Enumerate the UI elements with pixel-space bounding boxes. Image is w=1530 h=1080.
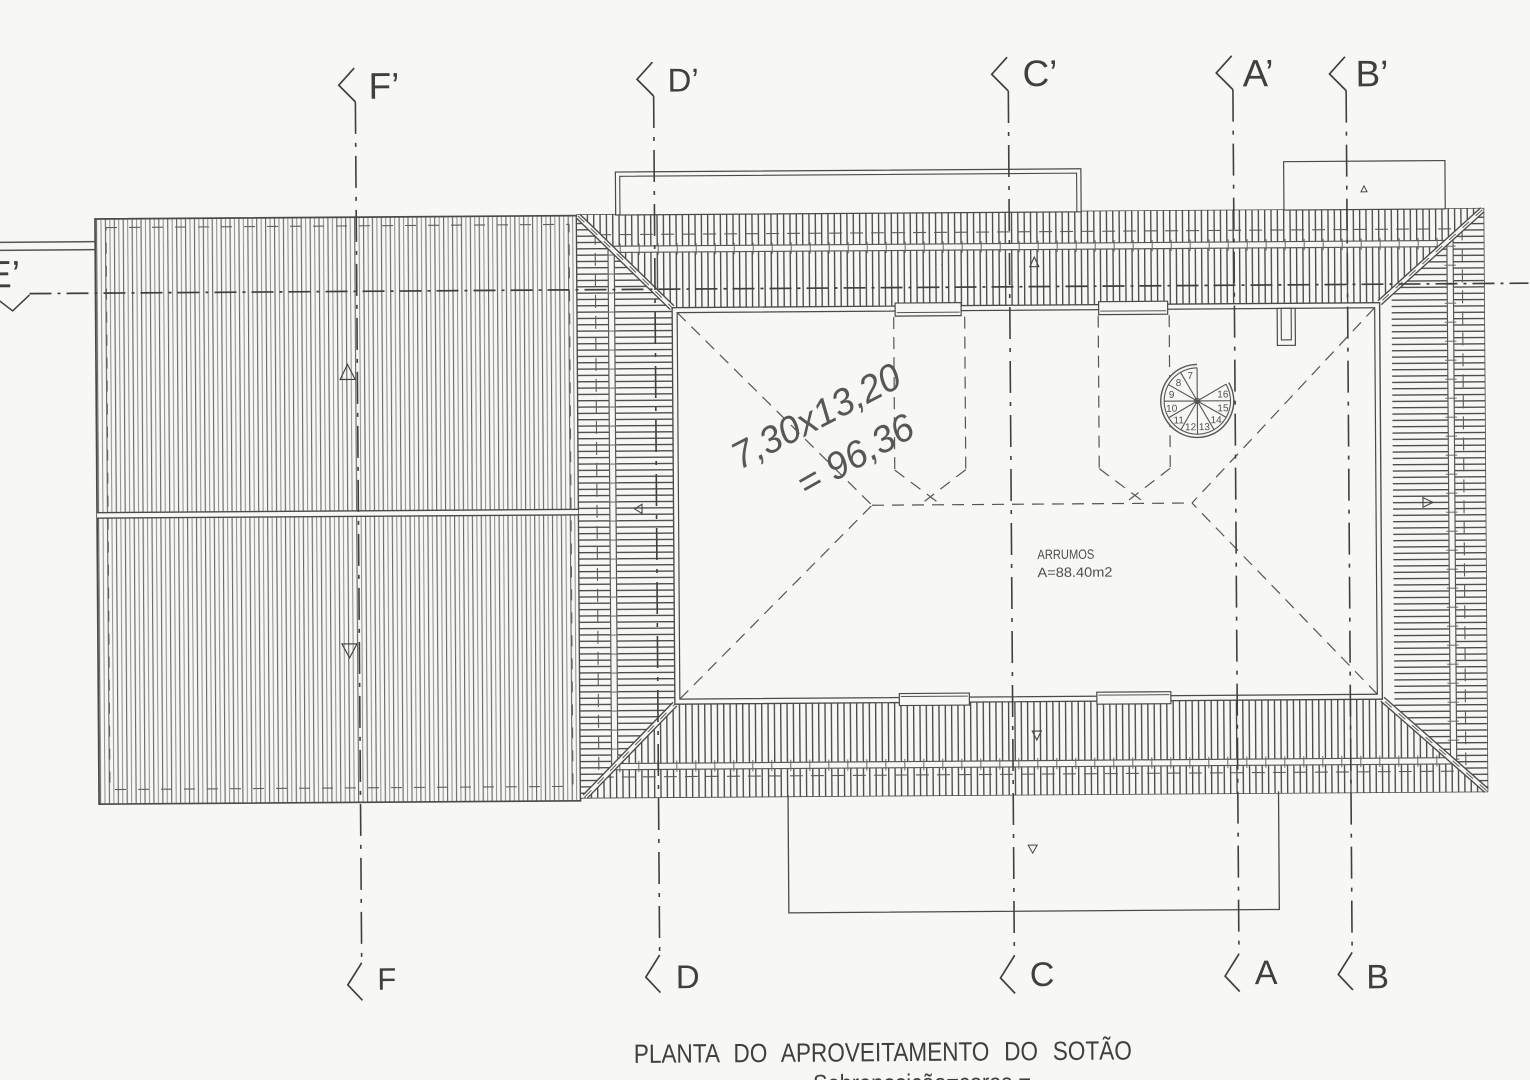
svg-text:7: 7 xyxy=(1187,371,1193,382)
svg-text:16: 16 xyxy=(1217,389,1229,400)
svg-text:D: D xyxy=(676,958,700,995)
svg-text:E’: E’ xyxy=(0,254,20,296)
svg-text:F: F xyxy=(377,962,396,997)
svg-text:C’: C’ xyxy=(1022,53,1057,94)
svg-text:12: 12 xyxy=(1185,422,1197,433)
svg-text:14: 14 xyxy=(1211,415,1223,426)
svg-text:B’: B’ xyxy=(1355,53,1388,94)
svg-text:13: 13 xyxy=(1199,422,1211,433)
svg-text:C: C xyxy=(1030,956,1055,994)
svg-text:A: A xyxy=(1255,954,1278,992)
svg-text:Sobreposição=cores =: Sobreposição=cores = xyxy=(813,1069,1031,1080)
svg-text:B: B xyxy=(1366,958,1389,996)
svg-text:10: 10 xyxy=(1166,404,1178,415)
svg-text:A’: A’ xyxy=(1243,53,1274,95)
svg-text:ARRUMOS: ARRUMOS xyxy=(1037,547,1094,562)
svg-text:D’: D’ xyxy=(667,61,698,98)
svg-text:A=88.40m2: A=88.40m2 xyxy=(1037,565,1112,581)
svg-text:F’: F’ xyxy=(368,66,399,107)
svg-text:9: 9 xyxy=(1169,390,1175,401)
svg-text:11: 11 xyxy=(1173,415,1184,426)
svg-text:15: 15 xyxy=(1217,403,1229,414)
svg-text:PLANTA DO APROVEITAMENTO DO SO: PLANTA DO APROVEITAMENTO DO SOTÃO xyxy=(634,1035,1132,1068)
svg-text:8: 8 xyxy=(1176,378,1182,389)
